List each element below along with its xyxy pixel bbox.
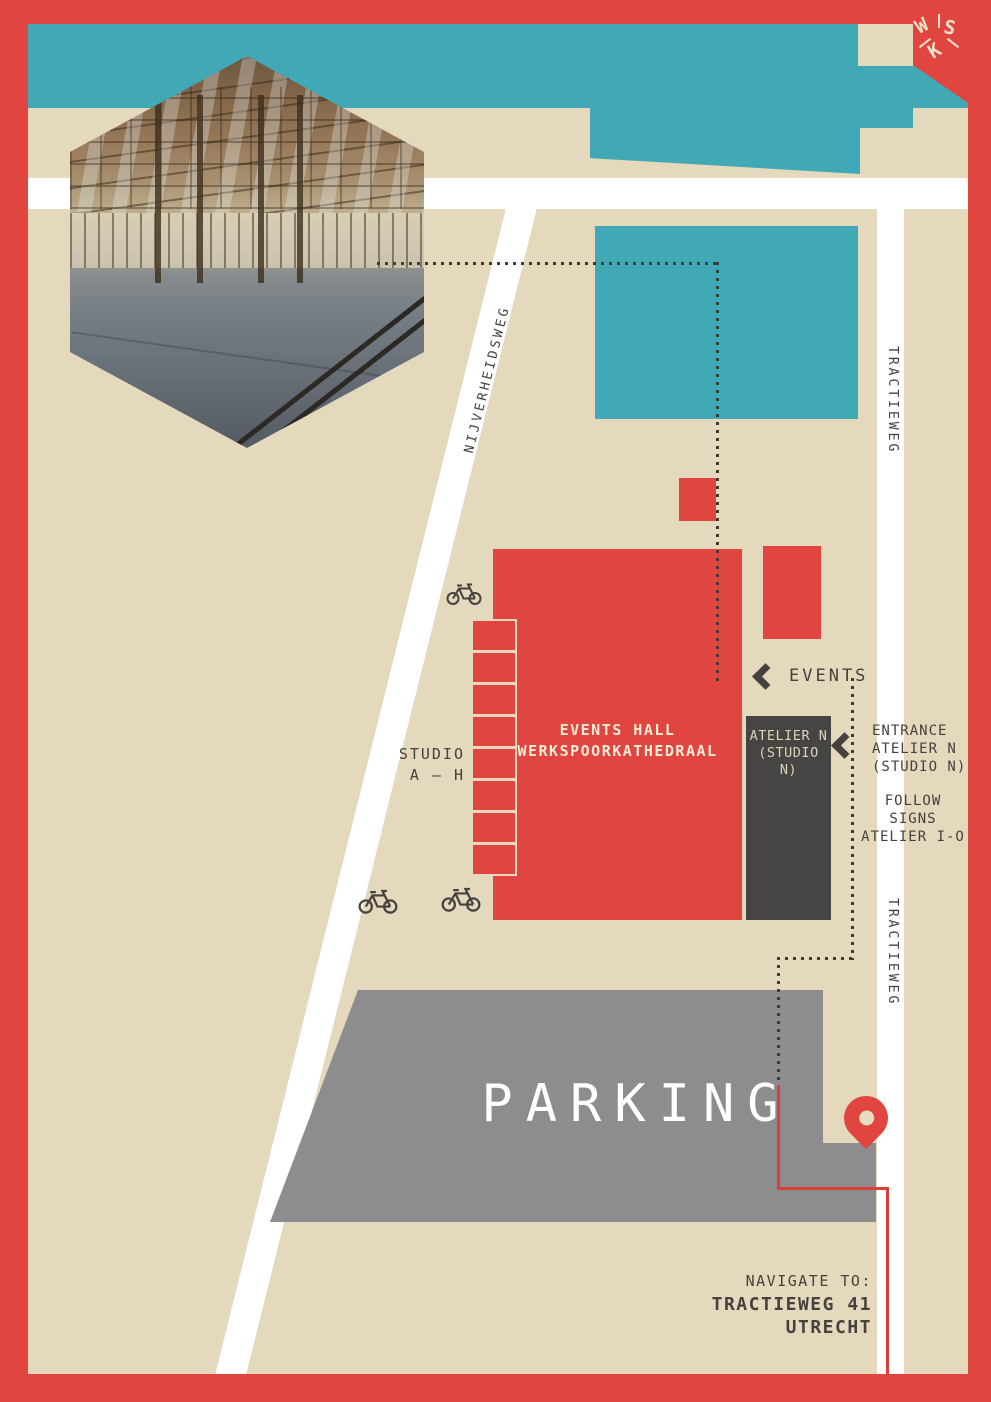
chevron-left-icon [752,663,779,690]
follow-signs-annotation: FOLLOW SIGNS ATELIER I-O [846,792,980,846]
events-annotation: EVENTS [756,666,868,686]
water-band-sliver [860,108,913,128]
follow-line3: ATELIER I-O [846,828,980,846]
navigate-address: TRACTIEWEG 41 [572,1293,872,1316]
events-hall-label-line2: WERKSPOORKATHEDRAAL [493,741,742,762]
dotted-connector-photo-h [377,262,719,265]
bicycle-icon [358,886,398,916]
navigate-annotation: NAVIGATE TO: TRACTIEWEG 41 UTRECHT [572,1270,872,1339]
dotted-route-v [777,957,780,1085]
events-hall-label-line1: EVENTS HALL [493,720,742,741]
dotted-connector-photo-v [716,262,719,682]
photo-column [197,95,203,283]
atelier-label-line2: (STUDIO N) [746,745,831,779]
photo-column [155,95,161,283]
teal-building-block [595,226,858,419]
photo-column [258,95,264,283]
bicycle-icon [441,884,481,914]
map-canvas: PARKING EVENTS HALL WERKSPOORKATHEDRAAL … [0,0,991,1402]
entrance-line1: ENTRANCE [872,722,966,740]
photo-window-band [70,213,424,268]
small-red-building [679,478,716,521]
studio-block [473,685,515,714]
photo-column [297,95,303,283]
route-line-h [777,1187,889,1190]
navigate-line1: NAVIGATE TO: [572,1270,872,1293]
band-notch [858,24,913,66]
studio-block [473,813,515,842]
wsk-logo-letter-w: W [912,14,932,39]
studio-block [473,781,515,810]
studio-range-annotation: STUDIO A – H [360,744,465,786]
street-label-tractieweg-mid: TRACTIEWEG [885,898,900,1028]
entrance-line2: ATELIER N [872,740,966,758]
route-line-v2 [886,1187,889,1374]
entrance-line3: (STUDIO N) [872,758,966,776]
studio-block [473,845,515,874]
atelier-label: ATELIER N (STUDIO N) [746,728,831,779]
route-line-v1 [777,1085,780,1190]
follow-line2: SIGNS [846,810,980,828]
events-label: EVENTS [789,666,868,686]
atelier-label-line1: ATELIER N [746,728,831,745]
navigate-city: UTRECHT [572,1316,872,1339]
north-red-building [763,546,821,639]
wsk-logo-line [938,14,940,28]
entrance-annotation: ENTRANCE ATELIER N (STUDIO N) [872,722,966,776]
events-hall-label: EVENTS HALL WERKSPOORKATHEDRAAL [493,720,742,762]
studio-block [473,653,515,682]
venue-photo-hexagon [70,56,424,448]
water-band-extension [590,108,860,174]
wsk-logo-letter-s: S [942,16,958,40]
studio-range-line2: A – H [360,765,465,786]
follow-line1: FOLLOW [846,792,980,810]
dotted-route-h [777,957,854,960]
studio-block [473,621,515,650]
bicycle-icon [446,580,482,607]
water-band-top [28,24,968,108]
studio-range-line1: STUDIO [360,744,465,765]
street-label-tractieweg-top: TRACTIEWEG [885,346,900,486]
